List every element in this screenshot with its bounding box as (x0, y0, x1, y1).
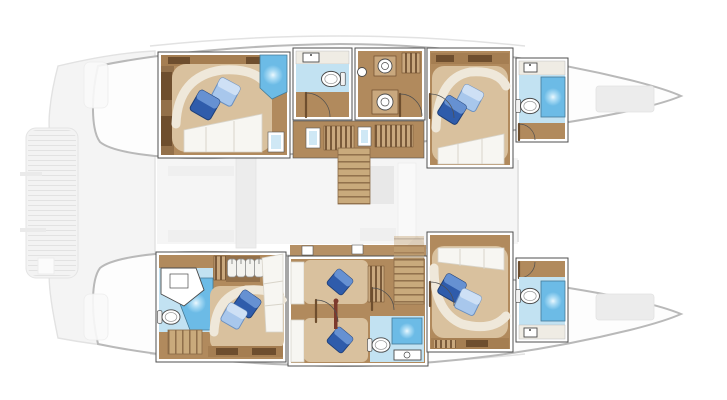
galley-counter-faint (236, 152, 256, 248)
round-basin (358, 68, 367, 77)
port-aft-cabin (158, 52, 290, 158)
bed-linen (262, 254, 283, 332)
single-bed-top (291, 260, 384, 304)
hanging-lockers (226, 256, 264, 282)
starboard-hull-accommodation (156, 232, 568, 366)
cockpit-bench-faint (168, 166, 234, 176)
washer (374, 56, 396, 76)
saloon-seat-faint (360, 228, 396, 241)
toilet (322, 71, 346, 86)
shower (541, 77, 565, 117)
port-bow-hatch (596, 86, 654, 112)
floor-plan-canvas (0, 0, 727, 400)
starboard-forward-cabin (427, 232, 513, 352)
cabinet (402, 53, 420, 73)
port-aft-bathroom (293, 48, 352, 120)
port-forward-cabin (427, 48, 513, 168)
port-utility (355, 48, 425, 120)
corridor-cabinet (324, 126, 354, 150)
shower (541, 281, 565, 321)
toilet (516, 98, 540, 113)
hull-window (302, 246, 313, 255)
headboard-cabinet (368, 266, 384, 302)
saloon-sofa-faint (398, 163, 416, 239)
double-bed (172, 64, 272, 152)
port-forward-bathroom (516, 58, 568, 142)
toilet (158, 310, 181, 324)
books (434, 340, 456, 348)
yacht-floor-plan (0, 0, 727, 400)
washbasin-counter (394, 350, 421, 360)
cockpit-bench-faint (168, 230, 234, 242)
starboard-aft-cabin (156, 252, 286, 362)
cockpit-seat-faint (84, 62, 108, 108)
stairs (168, 330, 202, 354)
cockpit-seat-faint (84, 294, 108, 340)
port-staircase (338, 148, 370, 204)
corridor-cabinet (375, 125, 413, 147)
staircase (394, 258, 424, 304)
toilet (516, 288, 540, 303)
shower (392, 318, 422, 344)
starboard-bow-hatch (596, 294, 654, 320)
starboard-mid-bathroom (368, 316, 425, 362)
double-bed (432, 66, 508, 164)
staircase-upper (394, 236, 424, 258)
starboard-forward-bathroom (516, 258, 568, 342)
hull-window (352, 245, 363, 254)
starboard-twin-cabin (288, 236, 428, 366)
single-bed-bottom (291, 318, 368, 362)
toilet (368, 338, 391, 352)
double-bed (432, 246, 508, 338)
dryer (372, 90, 398, 114)
aft-swim-platform (20, 128, 78, 278)
